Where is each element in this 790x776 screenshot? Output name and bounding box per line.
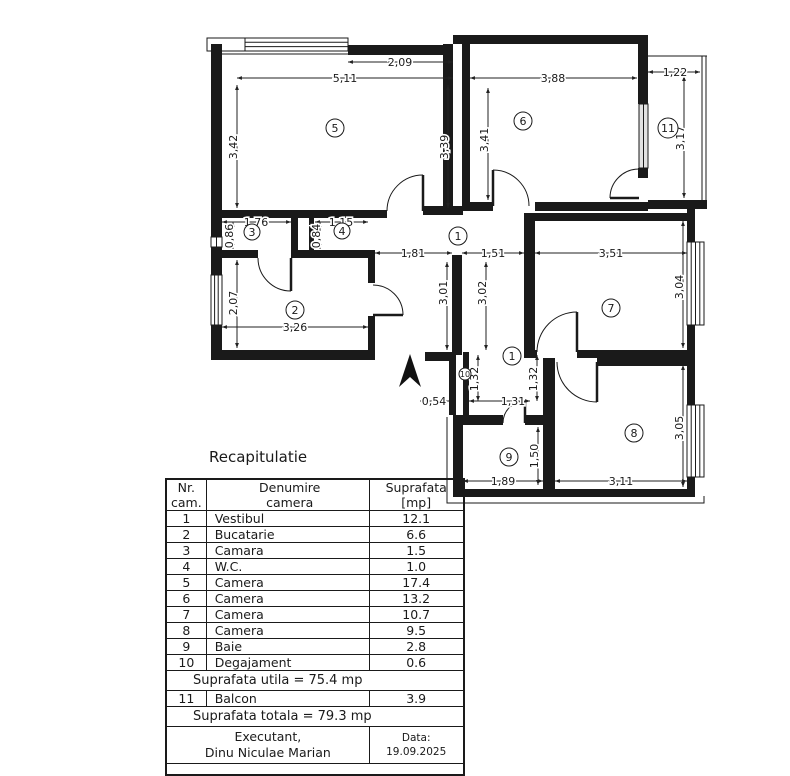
cell-area: 1.5 — [369, 543, 464, 559]
cell-nr: 5 — [166, 575, 206, 591]
door-room6-balcony — [610, 169, 639, 198]
svg-text:8: 8 — [631, 427, 638, 440]
cell-nr: 8 — [166, 623, 206, 639]
suprafata-utila-row: Suprafata utila = 75.4 mp — [166, 671, 464, 691]
cell-name: Camara — [206, 543, 369, 559]
door-camara — [258, 258, 291, 291]
room-number-6: 6 — [514, 112, 532, 130]
svg-text:5: 5 — [332, 122, 339, 135]
cell-name: Camera — [206, 575, 369, 591]
floor-plan-page: 2,09 5,11 3,88 1,22 3,42 3,39 3,41 3,17 … — [0, 0, 790, 768]
window-room8 — [687, 405, 704, 477]
dim-label: 3,05 — [673, 416, 686, 441]
dim-label: 0,86 — [223, 224, 236, 249]
svg-text:1: 1 — [509, 350, 516, 363]
dim-label: 1,50 — [528, 444, 541, 469]
cell-name: Bucatarie — [206, 527, 369, 543]
room-number-8: 8 — [625, 424, 643, 442]
north-arrow-icon — [399, 354, 421, 387]
cell-area: 6.6 — [369, 527, 464, 543]
room-number-1-lower: 1 — [503, 347, 521, 365]
table-row: 3 Camara 1.5 — [166, 543, 464, 559]
executant-cell: Executant, Dinu Niculae Marian — [166, 727, 369, 764]
header-area: Suprafata[mp] — [369, 479, 464, 511]
svg-text:2: 2 — [292, 304, 299, 317]
suprafata-totala-text: Suprafata totala = 79.3 mp — [166, 707, 464, 727]
executant-name: Dinu Niculae Marian — [205, 745, 331, 760]
room-number-5: 5 — [326, 119, 344, 137]
cell-area: 13.2 — [369, 591, 464, 607]
cell-nr: 11 — [166, 691, 206, 707]
room-number-3: 3 — [244, 224, 260, 240]
signature-row: Executant, Dinu Niculae Marian Data: 19.… — [166, 727, 464, 764]
cell-area: 17.4 — [369, 575, 464, 591]
dim-label: 1,22 — [663, 66, 688, 79]
table-row: 9 Baie 2.8 — [166, 639, 464, 655]
dim-label: 3,11 — [609, 475, 634, 488]
recap-header-row: Nr.cam. Denumirecamera Suprafata[mp] — [166, 479, 464, 511]
window-room7 — [687, 242, 704, 325]
room-number-7: 7 — [602, 299, 620, 317]
door-room6 — [493, 170, 529, 206]
dim-label: 1,89 — [491, 475, 516, 488]
cell-name: Camera — [206, 607, 369, 623]
window-left-large — [211, 275, 222, 325]
door-room7 — [537, 312, 577, 352]
door-room5 — [387, 175, 423, 211]
svg-text:1: 1 — [455, 230, 462, 243]
cell-nr: 2 — [166, 527, 206, 543]
cell-area: 3.9 — [369, 691, 464, 707]
cell-name: Camera — [206, 591, 369, 607]
date-value: 19.09.2025 — [386, 746, 446, 758]
room-number-1-upper: 1 — [449, 227, 467, 245]
dim-label: 2,07 — [227, 291, 240, 316]
cell-nr: 6 — [166, 591, 206, 607]
cell-area: 0.6 — [369, 655, 464, 671]
dim-label: 0,84 — [310, 224, 323, 249]
window-left-small — [211, 237, 222, 247]
svg-text:11: 11 — [661, 122, 675, 135]
svg-text:4: 4 — [339, 225, 346, 238]
recap-title: Recapitulatie — [209, 448, 307, 466]
window-top — [245, 38, 348, 51]
cell-nr: 1 — [166, 511, 206, 527]
svg-text:9: 9 — [506, 451, 513, 464]
date-label: Data: — [402, 732, 431, 744]
table-row: 8 Camera 9.5 — [166, 623, 464, 639]
cell-name: Baie — [206, 639, 369, 655]
recap-table: Nr.cam. Denumirecamera Suprafata[mp] 1 V… — [165, 478, 465, 776]
header-name: Denumirecamera — [206, 479, 369, 511]
door-bucatarie — [373, 285, 403, 315]
executant-role: Executant, — [234, 729, 301, 744]
dim-label: 3,04 — [673, 275, 686, 300]
dim-label: 3,42 — [227, 135, 240, 160]
cell-area: 10.7 — [369, 607, 464, 623]
cell-nr: 9 — [166, 639, 206, 655]
cell-nr: 4 — [166, 559, 206, 575]
room-number-2: 2 — [286, 301, 304, 319]
table-row: 2 Bucatarie 6.6 — [166, 527, 464, 543]
cell-area: 1.0 — [369, 559, 464, 575]
table-row: 5 Camera 17.4 — [166, 575, 464, 591]
svg-text:6: 6 — [520, 115, 527, 128]
svg-text:3: 3 — [249, 226, 256, 239]
cell-nr: 7 — [166, 607, 206, 623]
room-number-10: 10 — [459, 368, 471, 380]
door-room8 — [557, 362, 597, 402]
cell-name: Camera — [206, 623, 369, 639]
cell-area: 9.5 — [369, 623, 464, 639]
dim-label: 2,09 — [388, 56, 413, 69]
table-row: 1 Vestibul 12.1 — [166, 511, 464, 527]
dim-label: 0,54 — [422, 395, 447, 408]
dim-label: 3,26 — [283, 321, 308, 334]
cell-nr: 10 — [166, 655, 206, 671]
dim-label: 5,11 — [333, 72, 358, 85]
room-number-11: 11 — [658, 118, 678, 138]
table-row: 6 Camera 13.2 — [166, 591, 464, 607]
svg-text:7: 7 — [608, 302, 615, 315]
dim-label: 3,41 — [478, 128, 491, 153]
clipped-bottom-row — [166, 764, 464, 776]
dim-label: 1,32 — [527, 367, 540, 392]
dim-label: 3,02 — [476, 281, 489, 306]
table-row: 7 Camera 10.7 — [166, 607, 464, 623]
svg-text:10: 10 — [460, 370, 470, 379]
table-row-balcon: 11 Balcon 3.9 — [166, 691, 464, 707]
cell-area: 12.1 — [369, 511, 464, 527]
dim-label: 1,51 — [481, 247, 506, 260]
cell-name: Degajament — [206, 655, 369, 671]
dim-label: 1,81 — [401, 247, 426, 260]
room-number-4: 4 — [334, 223, 350, 239]
room-number-9: 9 — [500, 448, 518, 466]
header-nr: Nr.cam. — [166, 479, 206, 511]
window-balcony-door — [639, 104, 648, 168]
cell-name: Vestibul — [206, 511, 369, 527]
cell-nr: 3 — [166, 543, 206, 559]
table-row: 10 Degajament 0.6 — [166, 655, 464, 671]
dim-label: 1,31 — [501, 395, 526, 408]
suprafata-totala-row: Suprafata totala = 79.3 mp — [166, 707, 464, 727]
cell-area: 2.8 — [369, 639, 464, 655]
dim-label: 3,39 — [438, 135, 451, 160]
dim-label: 3,51 — [599, 247, 624, 260]
table-row: 4 W.C. 1.0 — [166, 559, 464, 575]
floor-plan-drawing: 2,09 5,11 3,88 1,22 3,42 3,39 3,41 3,17 … — [0, 0, 790, 520]
dim-label: 3,01 — [437, 281, 450, 306]
cell-name: Balcon — [206, 691, 369, 707]
suprafata-utila-text: Suprafata utila = 75.4 mp — [166, 671, 464, 691]
cell-name: W.C. — [206, 559, 369, 575]
date-cell: Data: 19.09.2025 — [369, 727, 464, 764]
dim-label: 3,88 — [541, 72, 566, 85]
